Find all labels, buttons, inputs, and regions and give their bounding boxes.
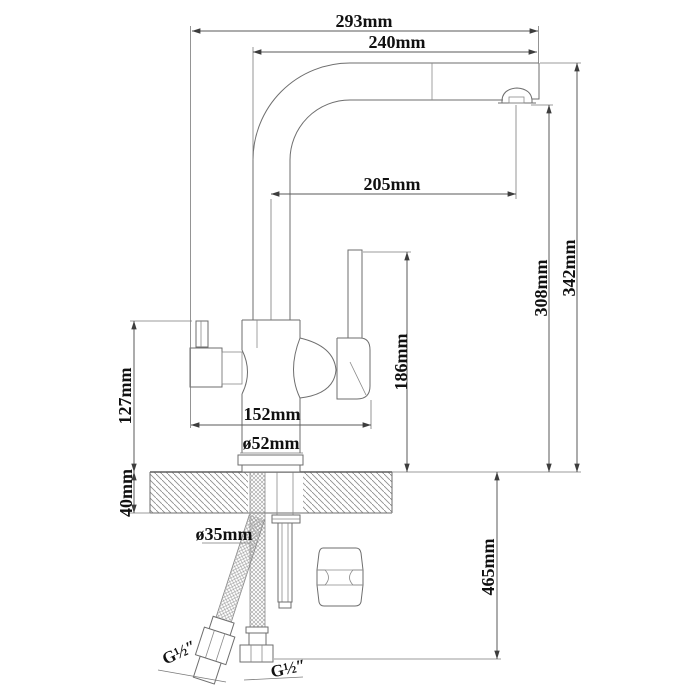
dim-label-205: 205mm (364, 174, 421, 194)
dim-label-127: 127mm (115, 368, 135, 425)
base-flange (238, 455, 303, 472)
hose-hex-nut (240, 645, 273, 662)
dim-label-465: 465mm (478, 539, 498, 596)
drawing-svg: 293mm 240mm 205mm 342mm 308mm 1 (0, 0, 700, 700)
dim-label-35: ø35mm (196, 524, 253, 544)
dim-35: ø35mm (196, 524, 253, 544)
dim-label-293: 293mm (336, 11, 393, 31)
dim-52: ø52mm (240, 433, 303, 453)
dim-label-186: 186mm (391, 334, 411, 391)
dim-label-40: 40mm (116, 469, 136, 517)
dim-label-342: 342mm (559, 240, 579, 297)
dim-label-152: 152mm (244, 404, 301, 424)
dim-label-52: ø52mm (243, 433, 300, 453)
drawing-background (0, 0, 700, 700)
dim-label-308: 308mm (531, 260, 551, 317)
dim-label-240: 240mm (369, 32, 426, 52)
faucet-technical-drawing: 293mm 240mm 205mm 342mm 308mm 1 (0, 0, 700, 700)
